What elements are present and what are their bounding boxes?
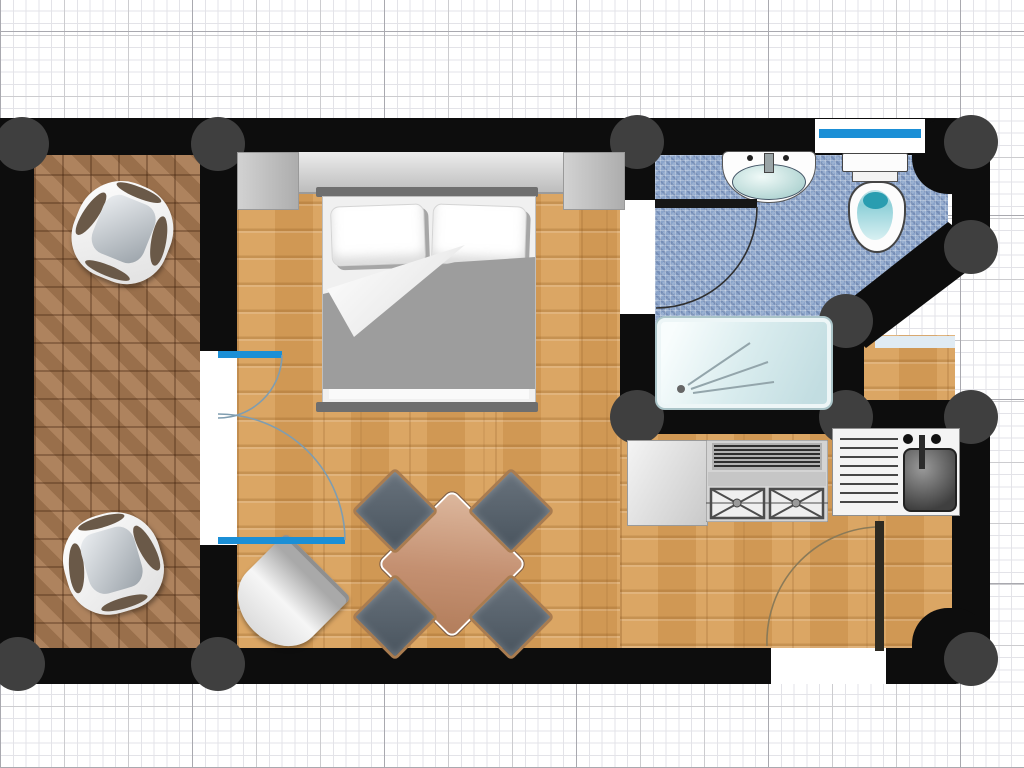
doors-overlay <box>0 0 1024 768</box>
french-door-leaf-bottom <box>218 537 345 544</box>
entrance-door <box>767 521 884 651</box>
french-door-arc-bottom <box>218 414 345 540</box>
bathroom-door <box>655 199 757 308</box>
french-door-arc-top <box>218 355 282 418</box>
balcony-french-door <box>218 351 345 544</box>
bathroom-door-swing-arc <box>656 207 757 308</box>
entrance-door-swing-arc <box>767 527 875 646</box>
floor-plan-canvas <box>0 0 1024 768</box>
entrance-door-leaf <box>875 521 884 651</box>
shower-spray <box>677 343 774 393</box>
shower-drain <box>677 385 685 393</box>
french-door-leaf-top <box>218 351 282 358</box>
bathroom-door-leaf <box>655 199 757 208</box>
